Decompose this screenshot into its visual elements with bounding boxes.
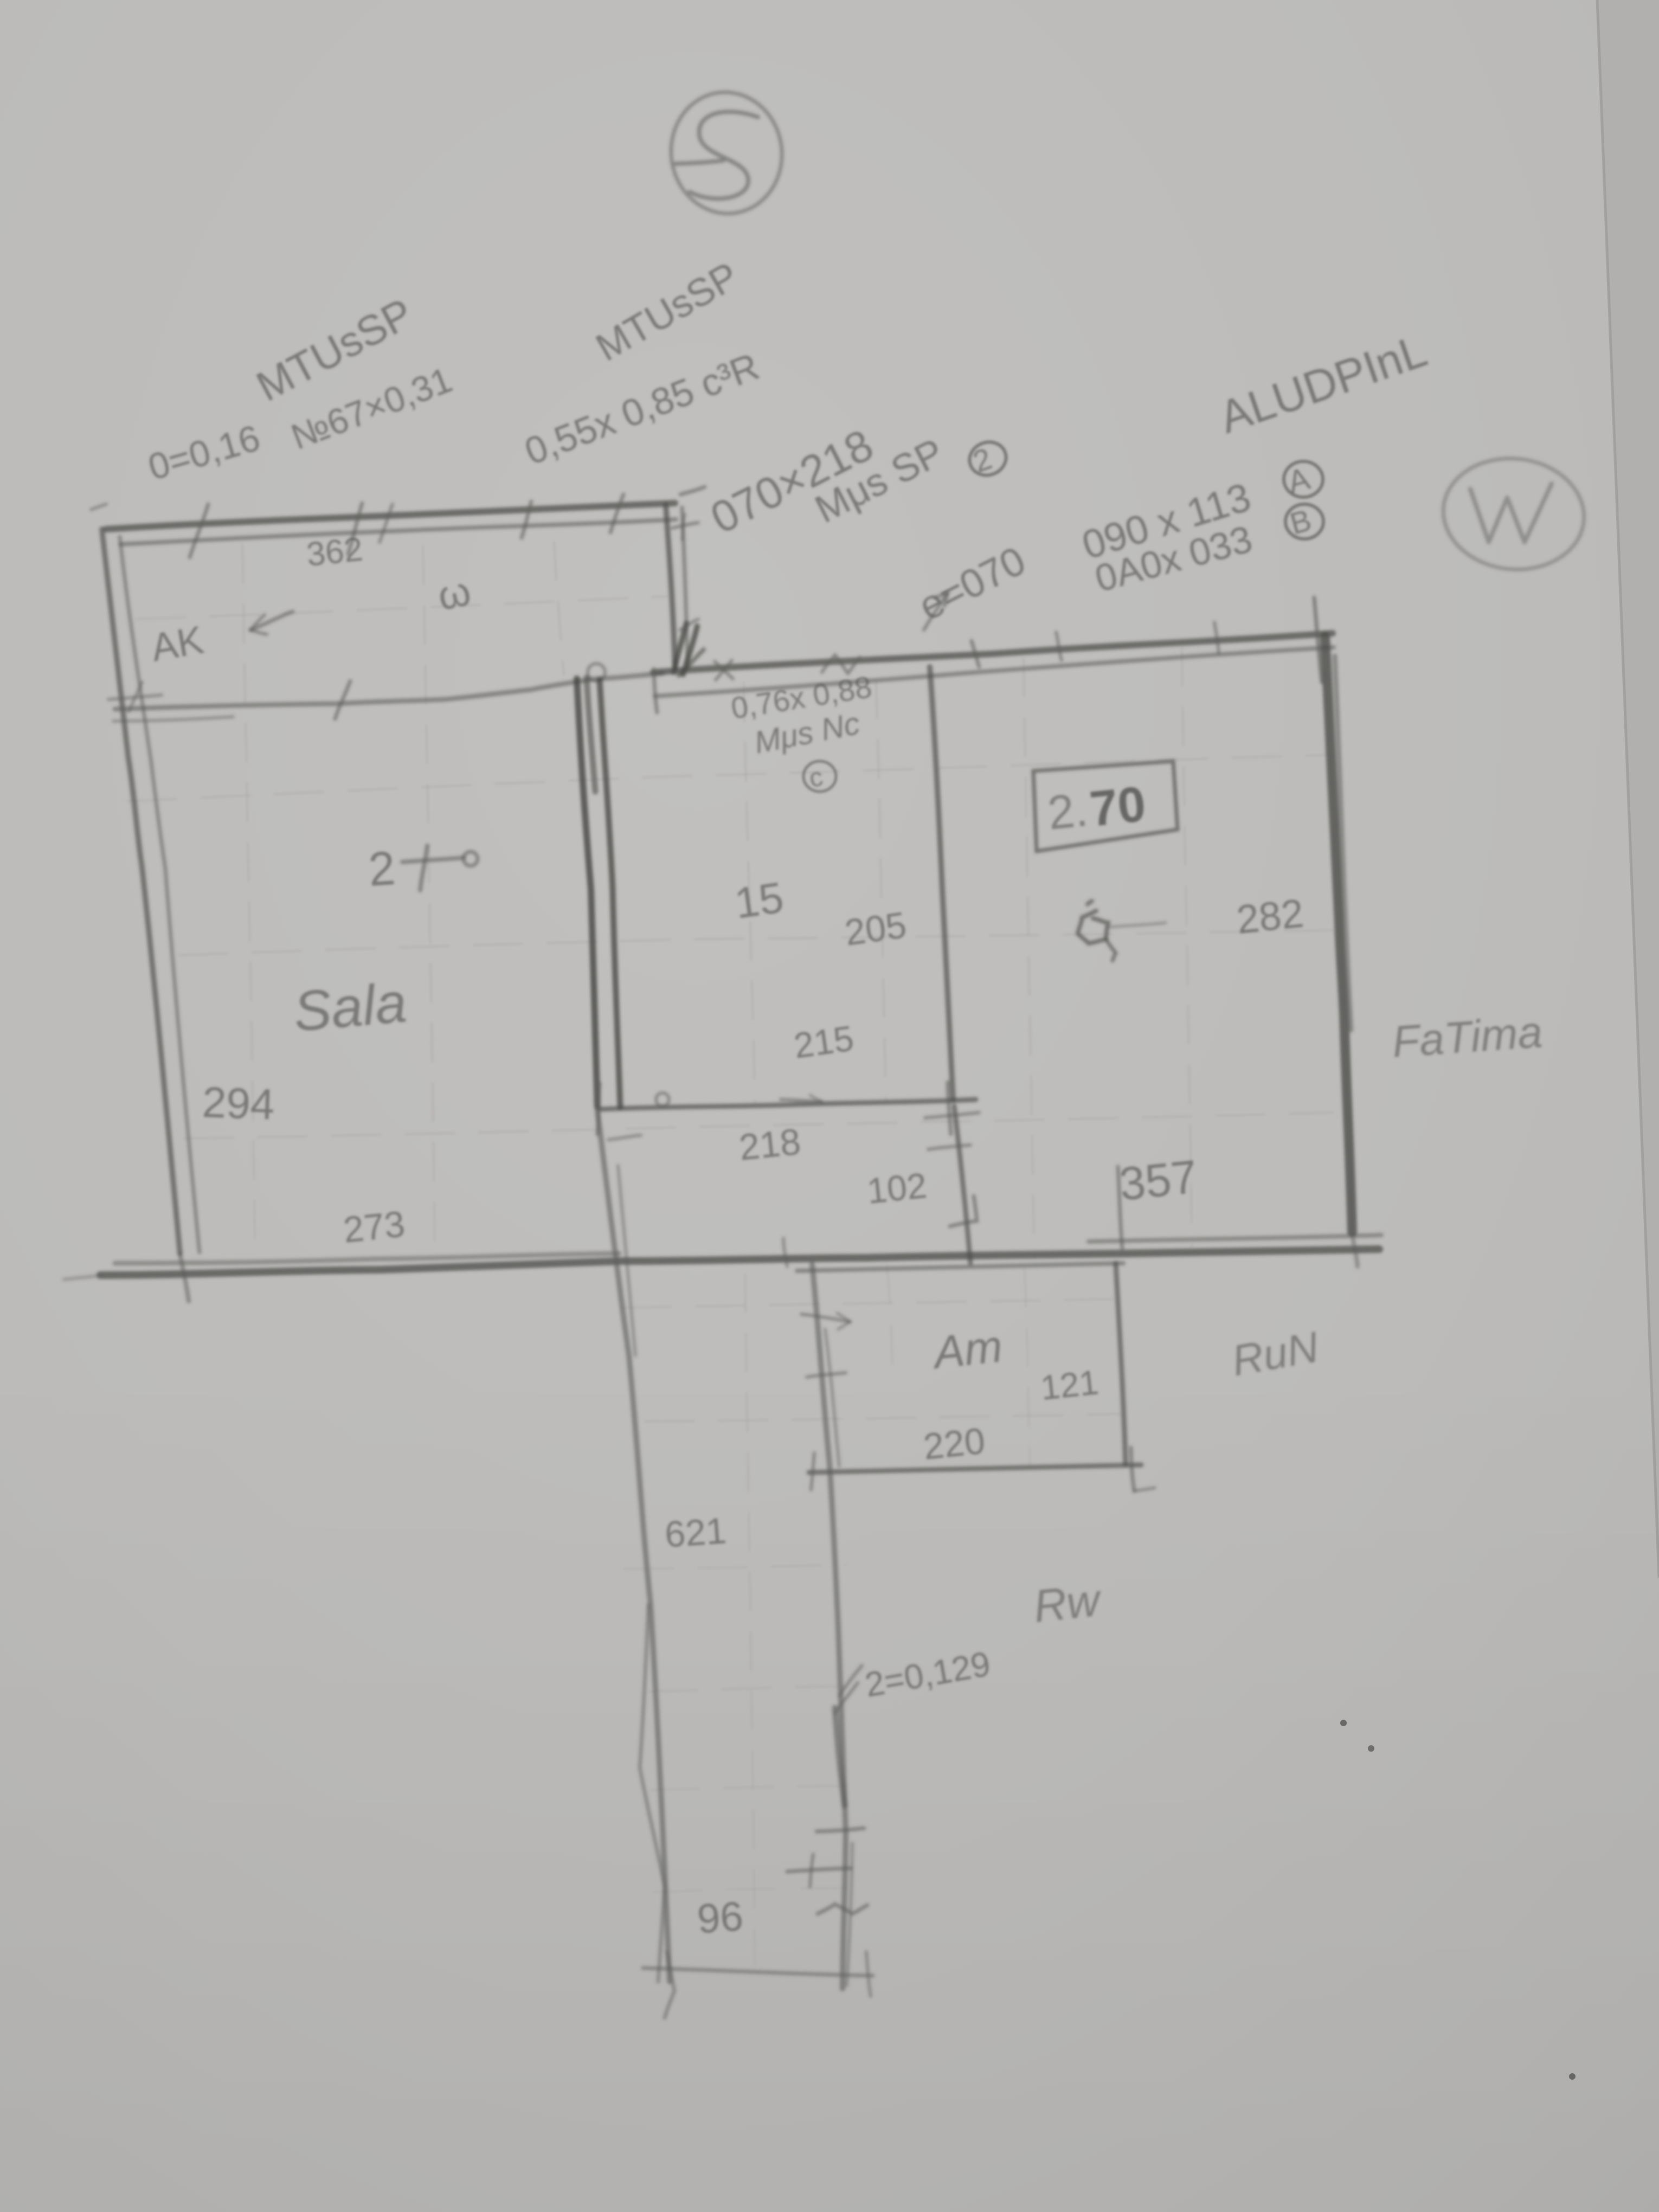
svg-text:282: 282 bbox=[1234, 890, 1306, 942]
svg-text:621: 621 bbox=[664, 1510, 728, 1555]
svg-text:218: 218 bbox=[737, 1121, 803, 1168]
svg-text:Rw: Rw bbox=[1031, 1574, 1105, 1632]
svg-text:273: 273 bbox=[342, 1203, 407, 1250]
svg-text:357: 357 bbox=[1117, 1150, 1200, 1210]
svg-text:Sаlа: Sаlа bbox=[291, 971, 409, 1044]
svg-text:215: 215 bbox=[792, 1018, 856, 1066]
svg-text:FaTimа: FaTimа bbox=[1391, 1007, 1544, 1067]
svg-text:220: 220 bbox=[922, 1420, 987, 1467]
svg-text:70: 70 bbox=[1087, 776, 1148, 837]
svg-text:15: 15 bbox=[732, 873, 787, 928]
svg-text:102: 102 bbox=[865, 1165, 929, 1211]
svg-text:362: 362 bbox=[305, 530, 364, 573]
svg-text:205: 205 bbox=[843, 904, 909, 954]
svg-text:2.: 2. bbox=[1045, 782, 1090, 840]
svg-text:AK: AK bbox=[148, 618, 207, 670]
svg-text:2: 2 bbox=[366, 841, 397, 896]
svg-text:Am: Am bbox=[929, 1320, 1005, 1378]
svg-text:121: 121 bbox=[1039, 1362, 1101, 1407]
svg-text:96: 96 bbox=[696, 1893, 744, 1943]
svg-text:294: 294 bbox=[201, 1078, 275, 1129]
